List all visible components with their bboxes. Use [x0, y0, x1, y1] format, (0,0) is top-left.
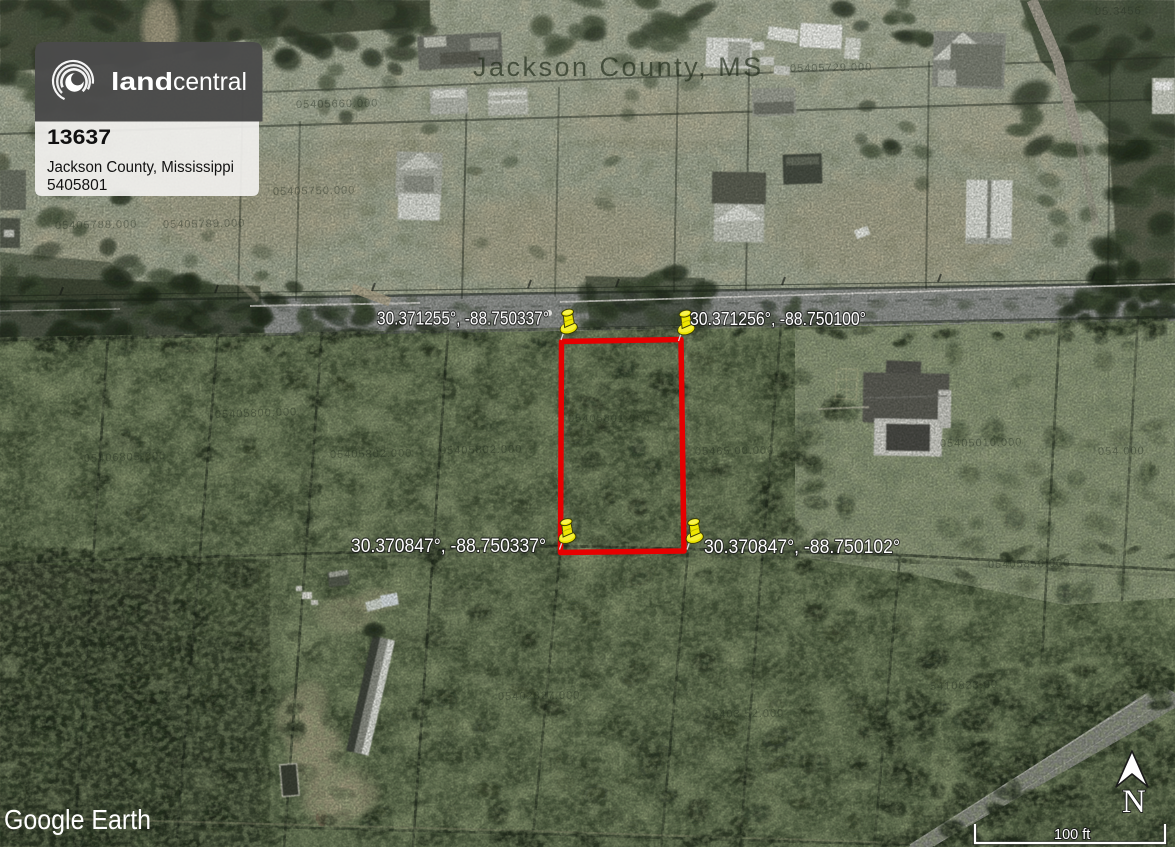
svg-text:05405802.000: 05405802.000	[440, 444, 523, 457]
svg-text:05405789.000: 05405789.000	[163, 218, 246, 231]
svg-text:Google Earth: Google Earth	[4, 804, 151, 835]
svg-text:Jackson County, Mississippi: Jackson County, Mississippi	[47, 159, 234, 176]
svg-text:05405788.000: 05405788.000	[55, 219, 138, 232]
svg-text:05.3456: 05.3456	[1095, 5, 1142, 18]
svg-text:30.370847°, -88.750102°: 30.370847°, -88.750102°	[704, 537, 900, 558]
svg-text:N: N	[1122, 784, 1146, 820]
svg-text:05405729.000: 05405729.000	[790, 62, 873, 75]
svg-text:13637: 13637	[47, 126, 111, 149]
svg-text:05405010.000: 05405010.000	[940, 437, 1023, 450]
svg-text:5410823.00: 5410823.00	[930, 679, 999, 693]
svg-text:05405856.000: 05405856.000	[988, 558, 1071, 571]
svg-text:05405802.000: 05405802.000	[330, 448, 413, 461]
svg-text:05405801.000: 05405801.000	[568, 413, 650, 425]
svg-text:05465.00.000: 05465.00.000	[695, 445, 774, 458]
svg-text:05402827.000: 05402827.000	[498, 690, 581, 703]
svg-text:5405801: 5405801	[47, 177, 107, 194]
svg-text:Jackson County, MS: Jackson County, MS	[473, 52, 764, 82]
svg-text:30.370847°, -88.750337°: 30.370847°, -88.750337°	[351, 536, 546, 557]
svg-text:05405750.000: 05405750.000	[273, 185, 356, 198]
svg-text:landcentral: landcentral	[111, 68, 247, 96]
svg-text:30.371255°, -88.750337°: 30.371255°, -88.750337°	[377, 309, 549, 329]
svg-text:054.000: 054.000	[1098, 445, 1145, 458]
svg-text:30.371256°, -88.750100°: 30.371256°, -88.750100°	[690, 309, 866, 329]
svg-text:05405660.000: 05405660.000	[296, 98, 379, 111]
svg-text:100 ft: 100 ft	[1054, 827, 1090, 843]
svg-text:05403.52.000: 05403.52.000	[705, 708, 784, 721]
